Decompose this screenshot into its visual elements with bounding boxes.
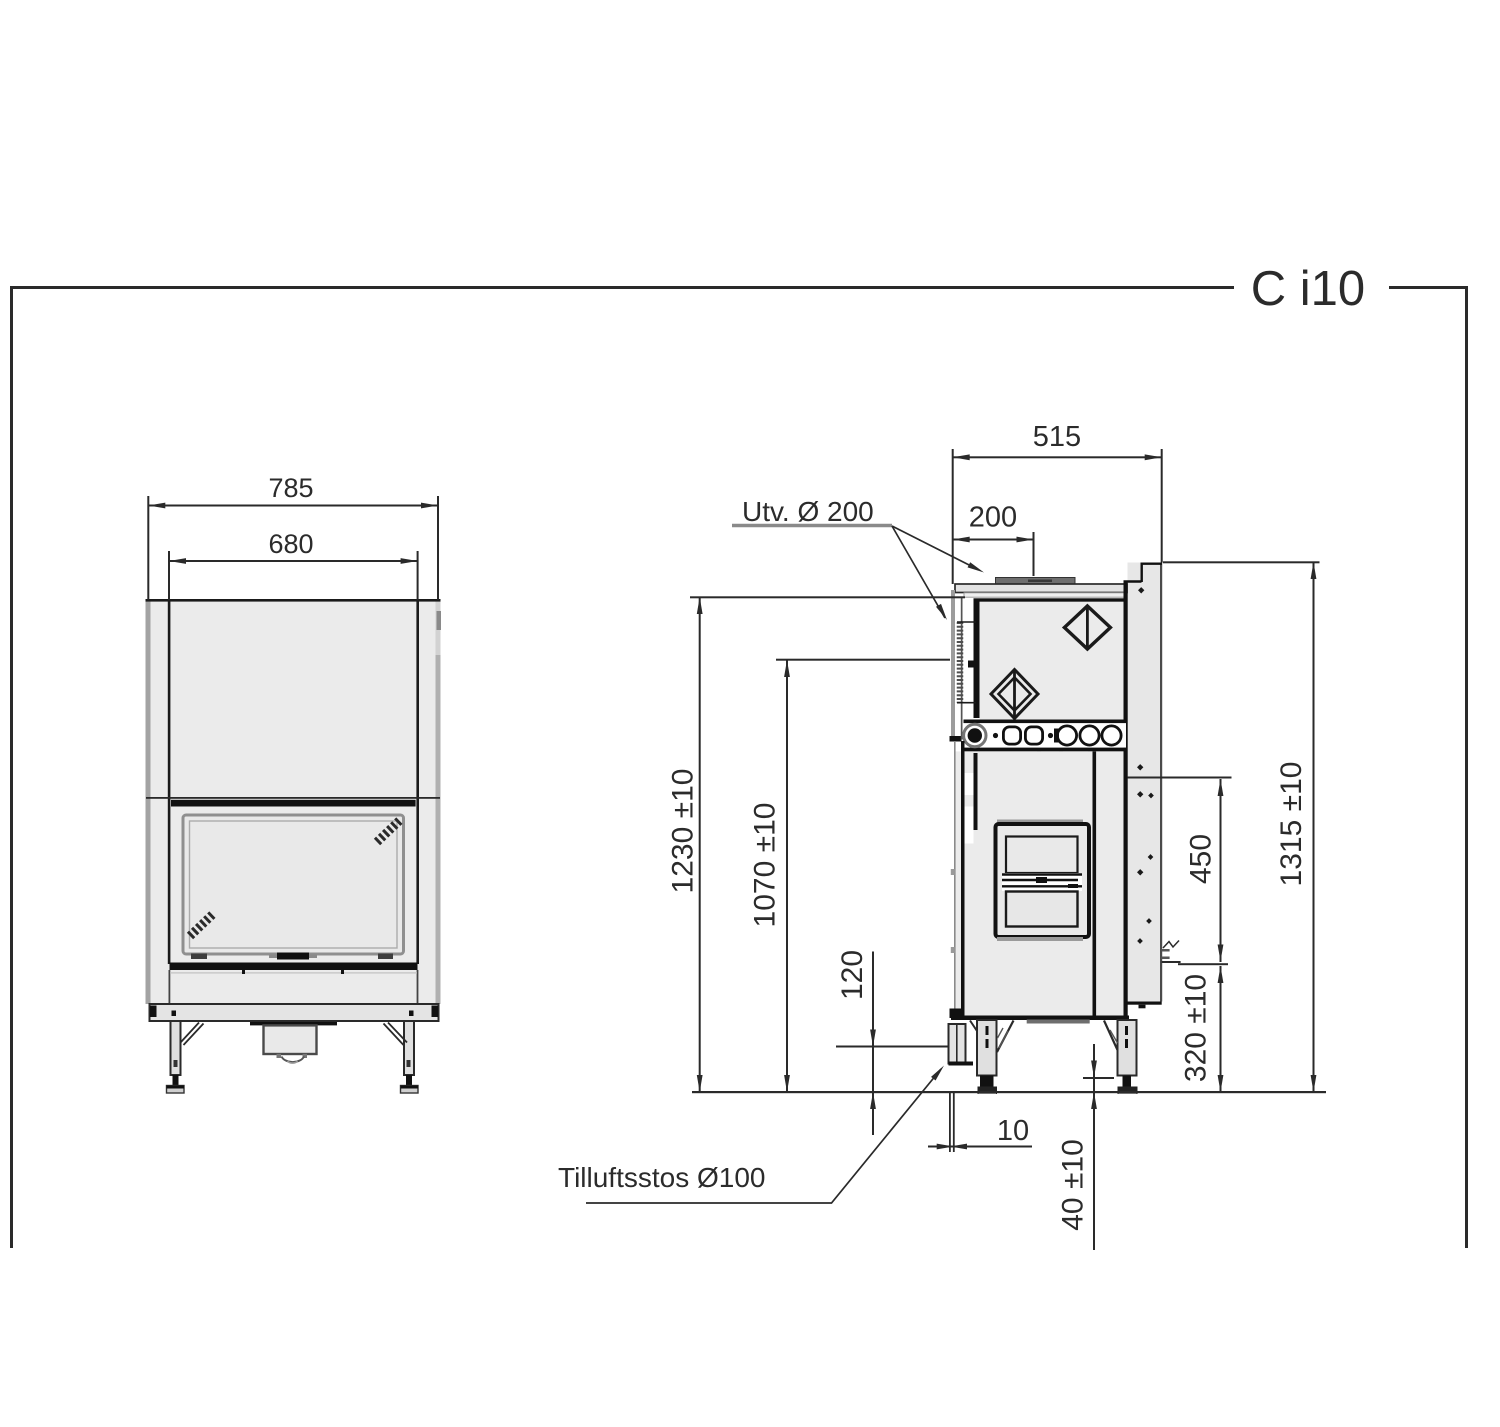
svg-text:785: 785: [268, 473, 313, 503]
svg-text:1070 ±10: 1070 ±10: [749, 803, 782, 928]
svg-text:C i10: C i10: [1251, 262, 1365, 316]
svg-text:680: 680: [268, 529, 313, 559]
svg-text:40 ±10: 40 ±10: [1057, 1139, 1090, 1231]
svg-text:320 ±10: 320 ±10: [1180, 974, 1213, 1082]
svg-text:450: 450: [1185, 834, 1218, 884]
svg-text:1315 ±10: 1315 ±10: [1275, 762, 1308, 887]
svg-text:Tilluftsstos Ø100: Tilluftsstos Ø100: [558, 1162, 765, 1193]
svg-text:1230 ±10: 1230 ±10: [667, 769, 700, 894]
svg-text:200: 200: [969, 502, 1017, 534]
svg-text:120: 120: [836, 950, 869, 1000]
svg-text:10: 10: [997, 1115, 1029, 1147]
svg-text:Utv. Ø 200: Utv. Ø 200: [742, 496, 874, 527]
svg-text:515: 515: [1033, 421, 1081, 453]
